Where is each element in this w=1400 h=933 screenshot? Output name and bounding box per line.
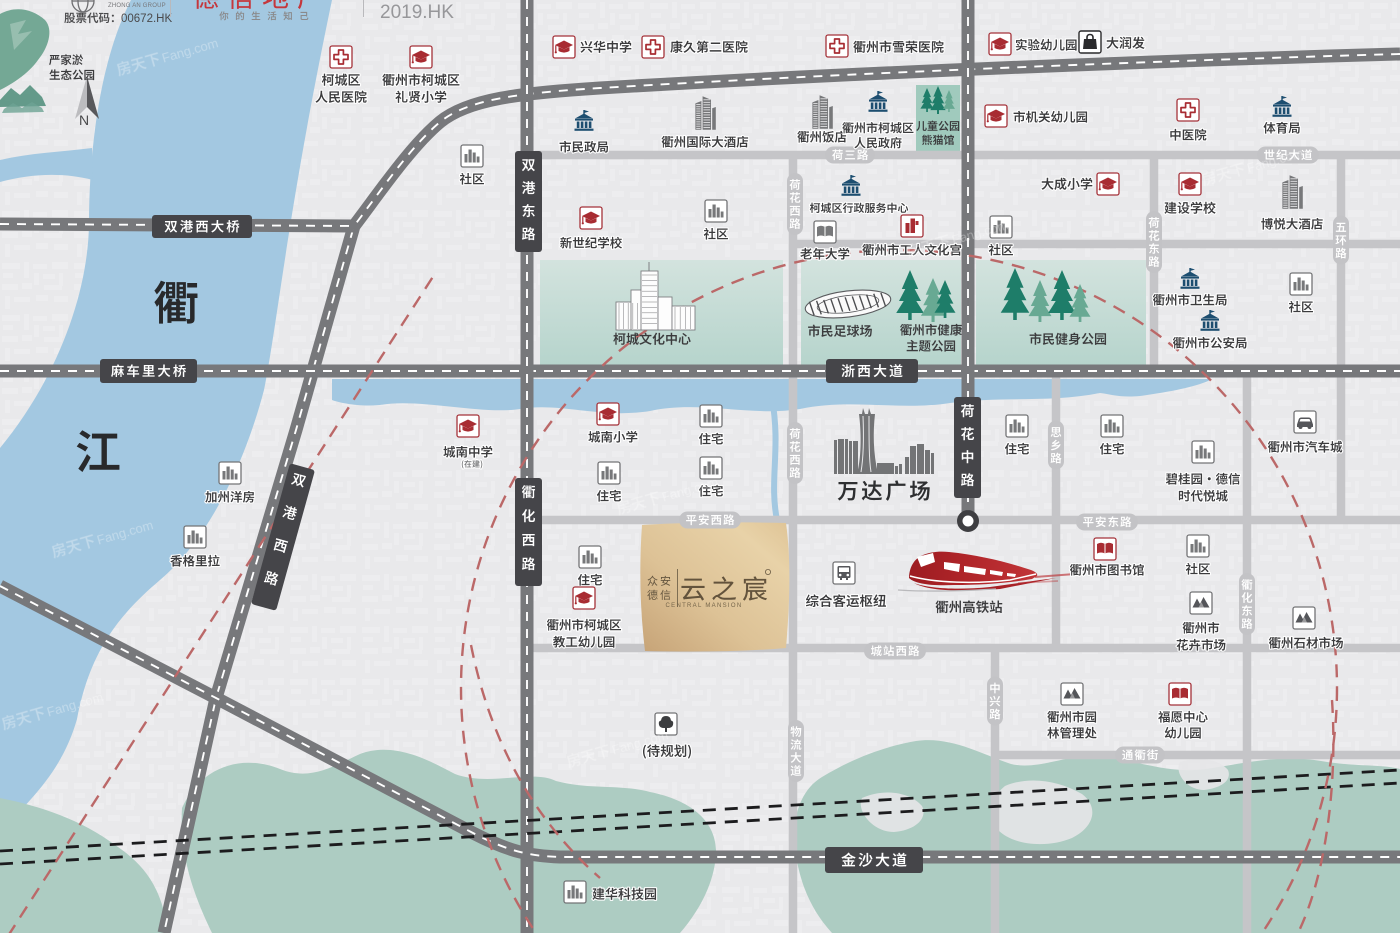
- svg-text:CENTRAL MANSION: CENTRAL MANSION: [666, 603, 743, 609]
- svg-text:N: N: [79, 112, 89, 128]
- svg-text:00672.HK: 00672.HK: [121, 13, 172, 25]
- svg-text:ZHONG AN GROUP: ZHONG AN GROUP: [108, 3, 166, 9]
- svg-text:2019.HK: 2019.HK: [380, 2, 454, 23]
